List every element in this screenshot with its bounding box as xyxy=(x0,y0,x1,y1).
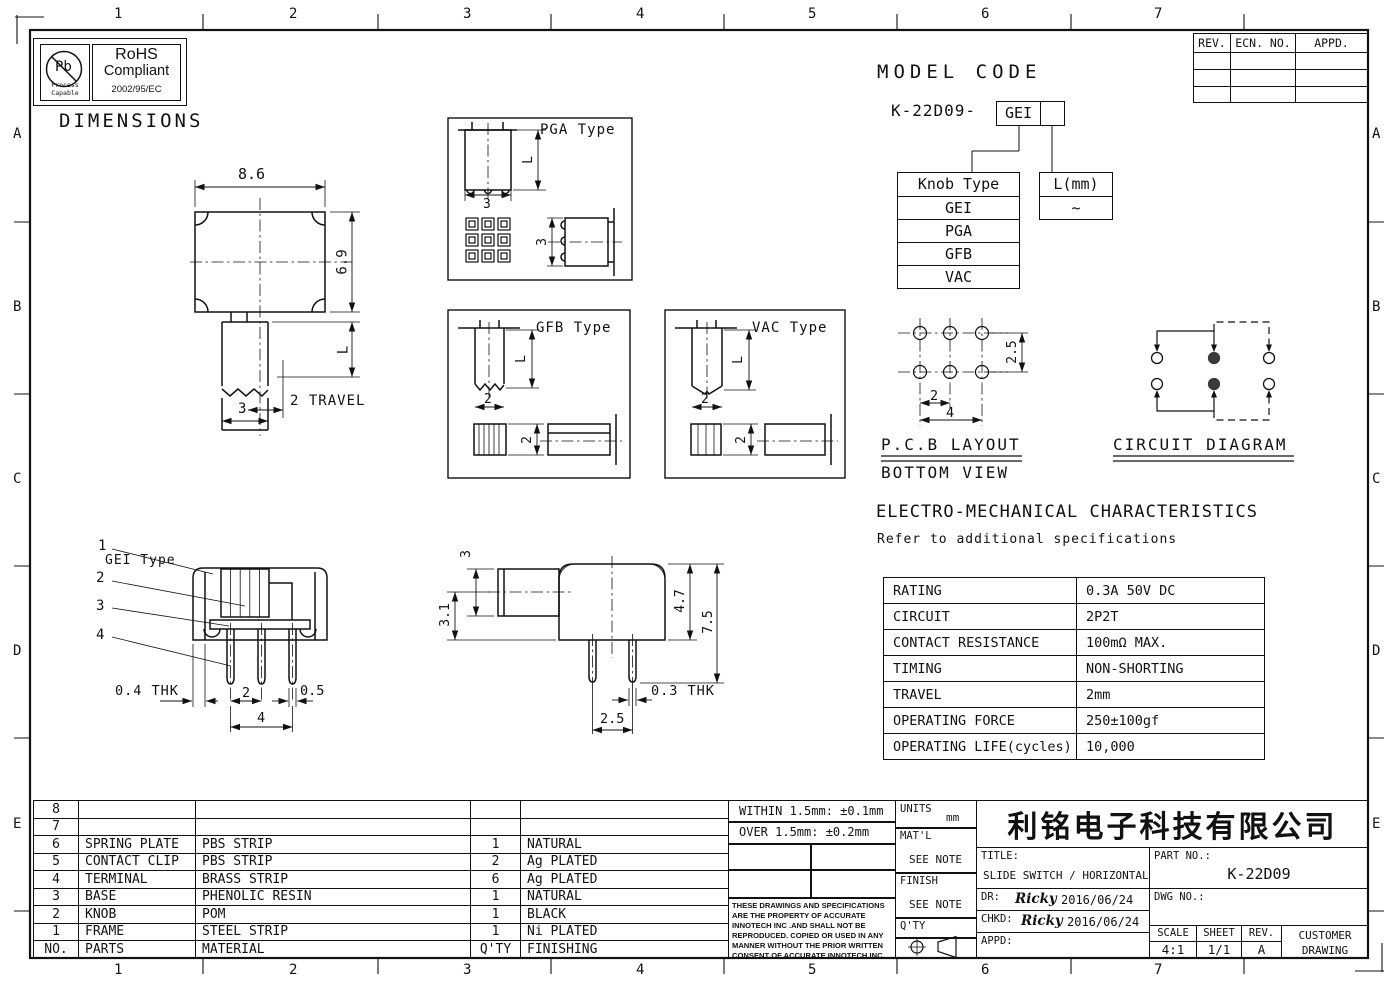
zone-col-label: 5 xyxy=(808,963,816,978)
em-value: 2P2T xyxy=(1077,604,1265,630)
part-no-label: PART NO.: xyxy=(1154,850,1211,862)
parts-cell: FRAME xyxy=(79,923,196,941)
rev-cell xyxy=(1194,70,1231,87)
rev-cell xyxy=(1231,70,1296,87)
chkd-date: 2016/06/24 xyxy=(1067,916,1139,929)
parts-cell: 2 xyxy=(34,906,79,924)
rev-cell xyxy=(1231,87,1296,103)
revision-table: REV. ECN. NO. APPD. xyxy=(1193,33,1368,103)
parts-cell xyxy=(79,818,196,836)
tolerance-empty-cell xyxy=(810,869,896,899)
rev-label: REV. xyxy=(1242,926,1281,942)
scale-label: SCALE xyxy=(1150,926,1196,942)
pcb-hole-span: 4 xyxy=(946,406,954,420)
parts-cell: STEEL STRIP xyxy=(196,923,471,941)
model-code-length-box xyxy=(1040,101,1065,126)
zone-row-label: D xyxy=(13,644,21,659)
view-label-gei: GEI Type xyxy=(105,554,176,568)
pga-dim-l: L xyxy=(522,156,536,164)
callout-2: 2 xyxy=(96,571,104,586)
callout-1: 1 xyxy=(98,539,106,554)
customer-line1: CUSTOMER xyxy=(1282,928,1368,943)
length-value: ~ xyxy=(1040,196,1112,219)
units-value: mm xyxy=(946,812,959,824)
pcb-row-pitch: 2.5 xyxy=(1006,340,1020,363)
parts-cell xyxy=(521,801,729,819)
parts-cell: 2 xyxy=(471,853,521,871)
zone-col-label: 4 xyxy=(636,963,644,978)
dim-knob-height: 3 xyxy=(460,550,474,558)
callout-4: 4 xyxy=(96,628,104,643)
appd-cell: APPD: xyxy=(976,932,1150,959)
dim-pin-width: 0.5 xyxy=(300,684,324,698)
units-cell: UNITS mm xyxy=(895,800,977,829)
zone-col-label: 1 xyxy=(114,963,122,978)
circuit-diagram-title: CIRCUIT DIAGRAM xyxy=(1113,437,1288,454)
units-label: UNITS xyxy=(900,803,932,815)
view-label-pga: PGA Type xyxy=(540,123,615,138)
view-label-vac: VAC Type xyxy=(752,321,827,336)
finish-cell: FINISH SEE NOTE xyxy=(895,872,977,919)
drawing-title: SLIDE SWITCH / HORIZONTAL xyxy=(983,870,1149,882)
zone-col-label: 6 xyxy=(981,7,989,22)
zone-row-label: C xyxy=(13,472,21,487)
part-no-cell: PART NO.: K-22D09 xyxy=(1149,847,1369,889)
parts-cell: Ag PLATED xyxy=(521,871,729,889)
rohs-process: Process xyxy=(44,82,86,89)
dwg-no-label: DWG NO.: xyxy=(1154,891,1205,903)
em-subheading: Refer to additional specifications xyxy=(877,533,1177,547)
title-cell: TITLE: SLIDE SWITCH / HORIZONTAL xyxy=(976,847,1150,889)
parts-cell: CONTACT CLIP xyxy=(79,853,196,871)
parts-cell: Ni PLATED xyxy=(521,923,729,941)
parts-cell xyxy=(521,818,729,836)
parts-header: NO. xyxy=(34,941,79,959)
part-no-value: K-22D09 xyxy=(1150,867,1368,883)
zone-row-label: E xyxy=(1372,817,1380,832)
parts-cell: BLACK xyxy=(521,906,729,924)
em-heading: ELECTRO-MECHANICAL CHARACTERISTICS xyxy=(876,504,1258,522)
rev-cell-block: REV. A xyxy=(1241,925,1282,959)
rohs-subtitle: Compliant xyxy=(93,64,180,79)
rev-col-header: REV. xyxy=(1194,34,1231,53)
chkd-cell: CHKD: Ricky 2016/06/24 xyxy=(976,910,1150,933)
rev-cell xyxy=(1296,87,1368,103)
rohs-directive: 2002/95/EC xyxy=(93,85,180,95)
matl-label: MAT'L xyxy=(900,830,932,842)
parts-cell: 1 xyxy=(34,923,79,941)
chkd-signature: Ricky xyxy=(1021,914,1063,928)
pcb-bottom-view-title: BOTTOM VIEW xyxy=(881,465,1009,482)
dr-cell: DR: Ricky 2016/06/24 xyxy=(976,888,1150,911)
zone-col-label: 2 xyxy=(289,7,297,22)
dim-frame-thk: 0.4 THK xyxy=(115,684,179,698)
gfb-dim-width: 2 xyxy=(484,393,492,407)
zone-col-label: 7 xyxy=(1154,963,1162,978)
zone-col-label: 3 xyxy=(463,7,471,22)
knob-type-header: Knob Type xyxy=(898,173,1019,196)
parts-cell: POM xyxy=(196,906,471,924)
tolerance-empty-cell xyxy=(810,843,896,871)
sheet-label: SHEET xyxy=(1197,926,1241,942)
zone-col-label: 6 xyxy=(981,963,989,978)
em-table: RATING0.3A 50V DC CIRCUIT2P2T CONTACT RE… xyxy=(883,577,1265,760)
scale-value: 4:1 xyxy=(1150,942,1196,958)
pga-dim-side: 3 xyxy=(536,238,550,246)
dim-stem-width: 3 xyxy=(238,402,246,417)
parts-cell: PHENOLIC RESIN xyxy=(196,888,471,906)
dr-label: DR: xyxy=(981,891,1000,903)
dim-knob-offset: 3.1 xyxy=(439,603,453,626)
parts-table: 8 7 6SPRING PLATEPBS STRIP1NATURAL 5CONT… xyxy=(33,800,729,959)
parts-cell: Ag PLATED xyxy=(521,853,729,871)
knob-option: GFB xyxy=(898,242,1019,265)
rohs-title: RoHS xyxy=(93,47,180,64)
parts-header: PARTS xyxy=(79,941,196,959)
em-label: TIMING xyxy=(884,656,1077,682)
parts-header: Q'TY xyxy=(471,941,521,959)
appd-col-header: APPD. xyxy=(1296,34,1368,53)
sheet-cell: SHEET 1/1 xyxy=(1196,925,1242,959)
disclaimer-note: THESE DRAWINGS AND SPECIFICATIONS ARE TH… xyxy=(728,897,896,958)
em-value: 10,000 xyxy=(1077,734,1265,760)
em-label: CIRCUIT xyxy=(884,604,1077,630)
sheet-value: 1/1 xyxy=(1197,942,1241,958)
zone-row-label: D xyxy=(1372,644,1380,659)
gfb-dim-side: 2 xyxy=(521,436,535,444)
pcb-hole-pitch: 2 xyxy=(930,389,938,403)
zone-col-label: 3 xyxy=(463,963,471,978)
projection-symbol-cell xyxy=(895,937,977,959)
parts-cell: NATURAL xyxy=(521,836,729,854)
parts-cell: 6 xyxy=(34,836,79,854)
em-label: RATING xyxy=(884,578,1077,604)
parts-cell xyxy=(196,801,471,819)
parts-cell: TERMINAL xyxy=(79,871,196,889)
parts-cell: 1 xyxy=(471,888,521,906)
dim-body-height: 6.9 xyxy=(336,249,351,274)
parts-cell: PBS STRIP xyxy=(196,836,471,854)
zone-row-label: B xyxy=(1372,300,1380,315)
zone-col-label: 4 xyxy=(636,7,644,22)
em-label: CONTACT RESISTANCE xyxy=(884,630,1077,656)
zone-col-label: 5 xyxy=(808,7,816,22)
pb-free-icon: Pb xyxy=(55,60,72,75)
dr-signature: Ricky xyxy=(1015,892,1057,906)
em-value: 100mΩ MAX. xyxy=(1077,630,1265,656)
tolerance-within: WITHIN 1.5mm: ±0.1mm xyxy=(728,800,896,823)
em-value: NON-SHORTING xyxy=(1077,656,1265,682)
customer-line2: DRAWING xyxy=(1282,943,1368,958)
rev-cell xyxy=(1296,70,1368,87)
dr-date: 2016/06/24 xyxy=(1061,894,1133,907)
parts-cell xyxy=(196,818,471,836)
parts-cell: 6 xyxy=(471,871,521,889)
em-value: 2mm xyxy=(1077,682,1265,708)
zone-col-label: 7 xyxy=(1154,7,1162,22)
rev-value: A xyxy=(1242,942,1281,958)
parts-cell: 3 xyxy=(34,888,79,906)
parts-cell: SPRING PLATE xyxy=(79,836,196,854)
dim-pin-thk: 0.3 THK xyxy=(651,684,715,698)
finish-value: SEE NOTE xyxy=(909,899,962,911)
em-value: 0.3A 50V DC xyxy=(1077,578,1265,604)
parts-cell: BASE xyxy=(79,888,196,906)
parts-cell: 1 xyxy=(471,906,521,924)
parts-cell: 1 xyxy=(471,836,521,854)
knob-option: PGA xyxy=(898,219,1019,242)
title-label: TITLE: xyxy=(981,850,1019,862)
em-label: TRAVEL xyxy=(884,682,1077,708)
zone-col-label: 1 xyxy=(114,7,122,22)
dim-body-h: 4.7 xyxy=(674,589,688,612)
company-name: 利铭电子科技有限公司 xyxy=(976,800,1369,848)
zone-row-label: B xyxy=(13,300,21,315)
model-code-knob-box: GEI xyxy=(996,101,1041,126)
model-code-heading: MODEL CODE xyxy=(877,63,1041,83)
customer-drawing-cell: CUSTOMER DRAWING xyxy=(1281,925,1369,959)
dwg-no-cell: DWG NO.: xyxy=(1149,888,1369,926)
page-title: DIMENSIONS xyxy=(59,112,203,132)
length-header: L(mm) xyxy=(1040,173,1112,196)
knob-type-table: Knob Type GEI PGA GFB VAC xyxy=(897,172,1020,289)
parts-cell: 1 xyxy=(471,923,521,941)
vac-dim-l: L xyxy=(732,356,746,364)
zone-row-label: A xyxy=(1372,127,1380,142)
tolerance-empty-cell xyxy=(728,869,812,899)
finish-label: FINISH xyxy=(900,875,938,887)
parts-cell xyxy=(471,801,521,819)
pcb-layout-title: P.C.B LAYOUT xyxy=(881,437,1021,454)
pga-dim-width: 3 xyxy=(483,198,491,212)
rev-cell xyxy=(1194,53,1231,70)
parts-cell: 8 xyxy=(34,801,79,819)
parts-cell: 4 xyxy=(34,871,79,889)
dim-travel: 2 TRAVEL xyxy=(290,394,365,409)
rohs-capable: Capable xyxy=(44,90,86,97)
zone-col-label: 2 xyxy=(289,963,297,978)
parts-cell: PBS STRIP xyxy=(196,853,471,871)
dim-pin-pitch: 2 xyxy=(242,686,250,700)
rev-cell xyxy=(1231,53,1296,70)
ecn-col-header: ECN. NO. xyxy=(1231,34,1296,53)
dim-pin-span: 4 xyxy=(257,711,265,725)
zone-row-label: A xyxy=(13,127,21,142)
zone-row-label: E xyxy=(13,817,21,832)
dim-side-pin-pitch: 2.5 xyxy=(600,712,624,726)
drawing-sheet: 1 2 3 4 5 6 7 1 2 3 4 5 6 7 A B C D E A … xyxy=(0,0,1399,987)
appd-label: APPD: xyxy=(981,935,1013,947)
gfb-dim-l: L xyxy=(515,355,529,363)
tolerance-empty-cell xyxy=(728,843,812,871)
knob-option: GEI xyxy=(898,196,1019,219)
tolerance-over: OVER 1.5mm: ±0.2mm xyxy=(728,821,896,845)
vac-dim-width: 2 xyxy=(701,393,709,407)
parts-header: FINISHING xyxy=(521,941,729,959)
matl-cell: MAT'L SEE NOTE xyxy=(895,827,977,874)
parts-cell xyxy=(471,818,521,836)
parts-cell: 5 xyxy=(34,853,79,871)
parts-cell: KNOB xyxy=(79,906,196,924)
vac-dim-side: 2 xyxy=(735,436,749,444)
dim-body-width: 8.6 xyxy=(238,167,265,183)
callout-3: 3 xyxy=(96,599,104,614)
parts-cell xyxy=(79,801,196,819)
scale-cell: SCALE 4:1 xyxy=(1149,925,1197,959)
parts-header: MATERIAL xyxy=(196,941,471,959)
em-label: OPERATING LIFE(cycles) xyxy=(884,734,1077,760)
knob-option: VAC xyxy=(898,265,1019,288)
dim-total-h: 7.5 xyxy=(702,610,716,633)
parts-cell: NATURAL xyxy=(521,888,729,906)
qty-label: Q'TY xyxy=(900,920,925,932)
chkd-label: CHKD: xyxy=(981,913,1013,925)
model-code-base: K-22D09- xyxy=(891,103,976,120)
length-table: L(mm) ~ xyxy=(1039,172,1113,220)
view-label-gfb: GFB Type xyxy=(536,321,611,336)
rev-cell xyxy=(1194,87,1231,103)
parts-cell: BRASS STRIP xyxy=(196,871,471,889)
parts-cell: 7 xyxy=(34,818,79,836)
dim-stem-length: L xyxy=(337,346,352,354)
em-label: OPERATING FORCE xyxy=(884,708,1077,734)
rev-cell xyxy=(1296,53,1368,70)
em-value: 250±100gf xyxy=(1077,708,1265,734)
matl-value: SEE NOTE xyxy=(909,854,962,866)
qty-cell: Q'TY xyxy=(895,917,977,939)
zone-row-label: C xyxy=(1372,472,1380,487)
